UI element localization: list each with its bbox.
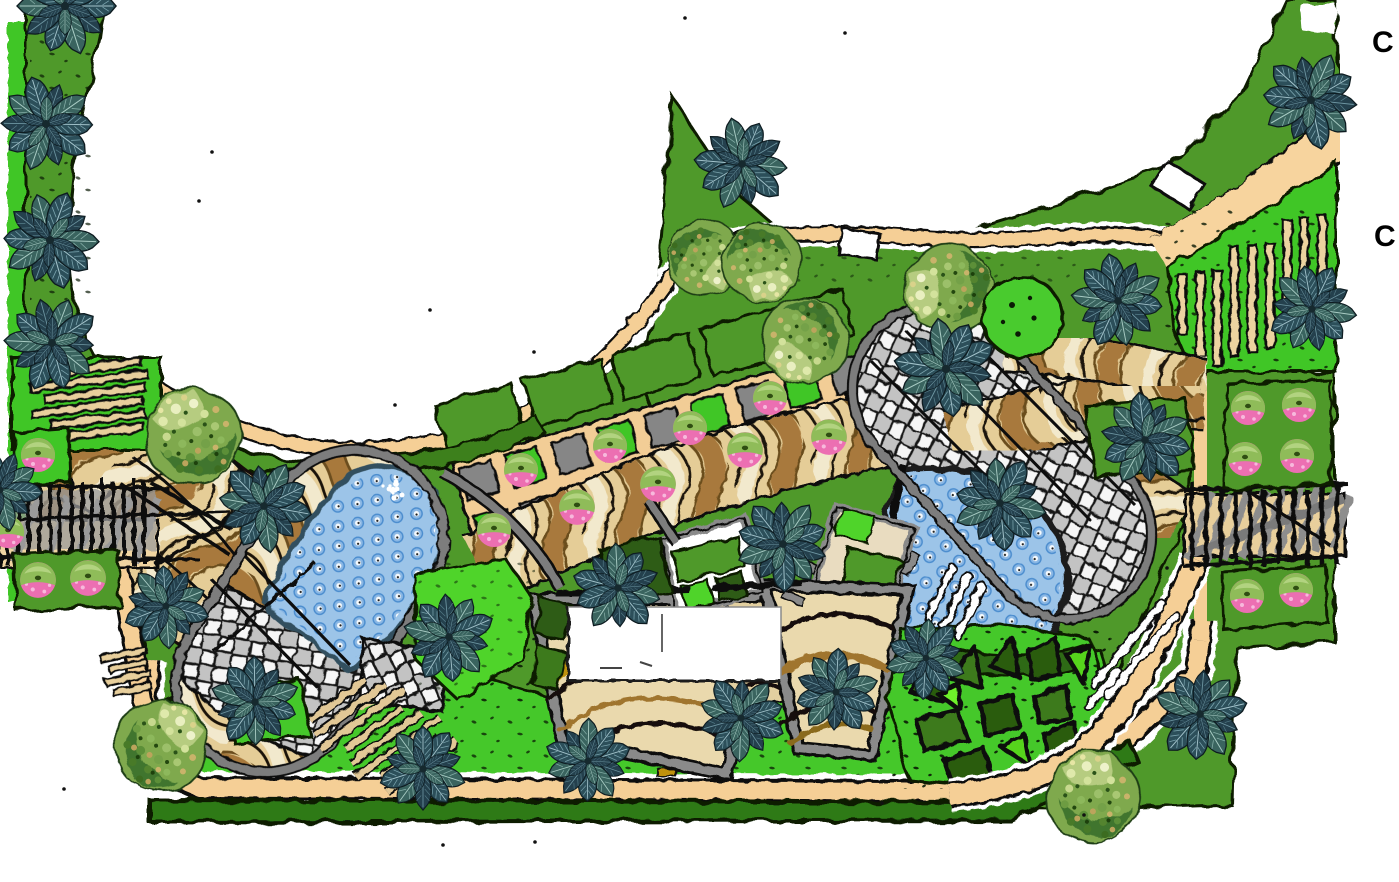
svg-text:C: C [1372, 26, 1394, 59]
svg-text:C: C [1374, 220, 1396, 253]
